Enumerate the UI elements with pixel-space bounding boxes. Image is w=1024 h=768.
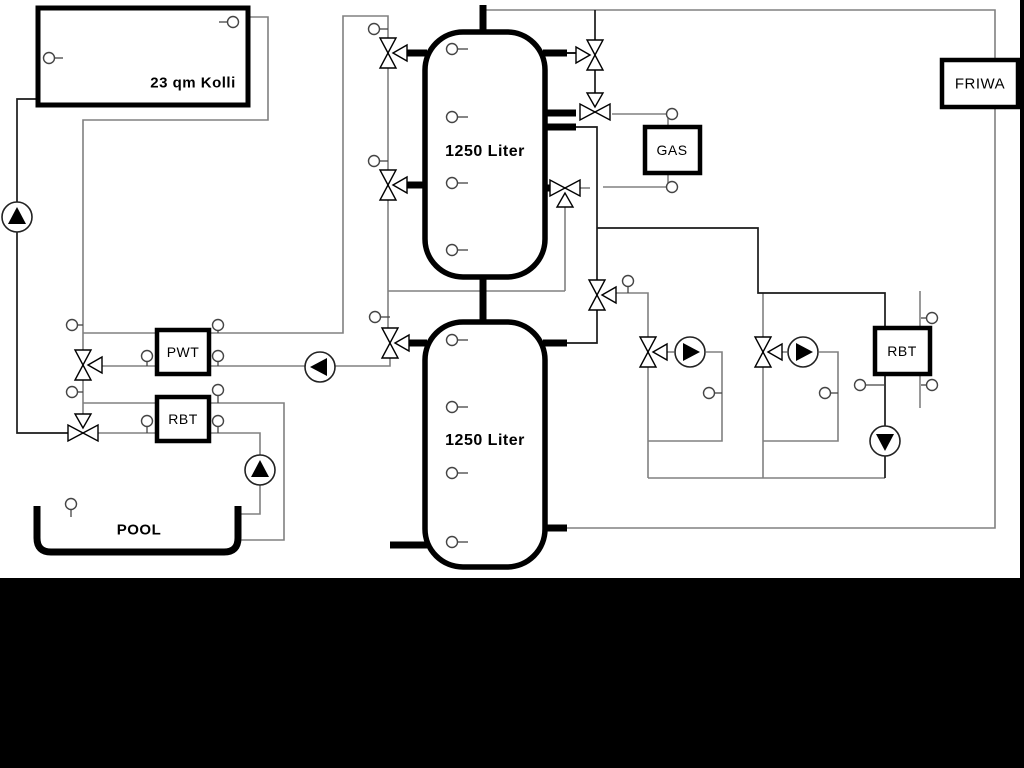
pump-right-icon [675,337,705,367]
mixing-valve-icon [550,180,580,207]
pump-up-icon [2,202,32,232]
mixing-valve-icon [589,280,616,310]
pipe-port-icon [667,109,678,120]
temp-sensor-icon [704,388,715,399]
pump-down-icon [870,426,900,456]
mixing-valve-icon [576,40,603,70]
tank-top-label: 1250 Liter [445,143,525,161]
mixing-valve-icon [68,414,98,441]
mixing-valve-icon [755,337,782,367]
rbt-left-label: RBT [168,411,198,427]
temp-sensor-icon [447,335,458,346]
temp-sensor-icon [213,385,224,396]
mixing-valve-icon [380,38,407,68]
tank-bottom-label: 1250 Liter [445,432,525,450]
temp-sensor-icon [67,387,78,398]
mixing-valve-icon [75,350,102,380]
friwa-label: FRIWA [955,76,1005,93]
temp-sensor-icon [213,416,224,427]
pump-left-icon [305,352,335,382]
temp-sensor-icon [623,276,634,287]
collector-label: 23 qm Kolli [150,75,236,92]
pool-label: POOL [117,522,162,539]
temp-sensor-icon [369,24,380,35]
temp-sensor-icon [142,416,153,427]
temp-sensor-icon [855,380,866,391]
mixing-valve-icon [380,170,407,200]
temp-sensor-icon [142,351,153,362]
schematic-stage: 23 qm Kolli 1250 Liter 1250 Liter PWT RB… [0,0,1024,768]
temp-sensor-icon [228,17,239,28]
temp-sensor-icon [447,44,458,55]
mixing-valve-icon [580,93,610,120]
right-edge-black-bar [1020,0,1024,578]
temp-sensor-icon [67,320,78,331]
mixing-valve-icon [382,328,409,358]
temp-sensor-icon [447,178,458,189]
temp-sensor-icon [66,499,77,510]
temp-sensor-icon [44,53,55,64]
temp-sensor-icon [369,156,380,167]
temp-sensor-icon [447,468,458,479]
temp-sensor-icon [447,245,458,256]
temp-sensor-icon [447,402,458,413]
temp-sensor-icon [370,312,381,323]
pump-up-icon [245,455,275,485]
pwt-label: PWT [167,344,200,360]
temp-sensor-icon [820,388,831,399]
gas-label: GAS [656,142,687,158]
mixing-valve-icon [640,337,667,367]
pipe-port-icon [667,182,678,193]
temp-sensor-icon [447,112,458,123]
footer-black-bar [0,578,1024,768]
rbt-right-label: RBT [887,343,917,359]
pump-right-icon [788,337,818,367]
temp-sensor-icon [927,380,938,391]
temp-sensor-icon [447,537,458,548]
temp-sensor-icon [927,313,938,324]
temp-sensor-icon [213,320,224,331]
temp-sensor-icon [213,351,224,362]
